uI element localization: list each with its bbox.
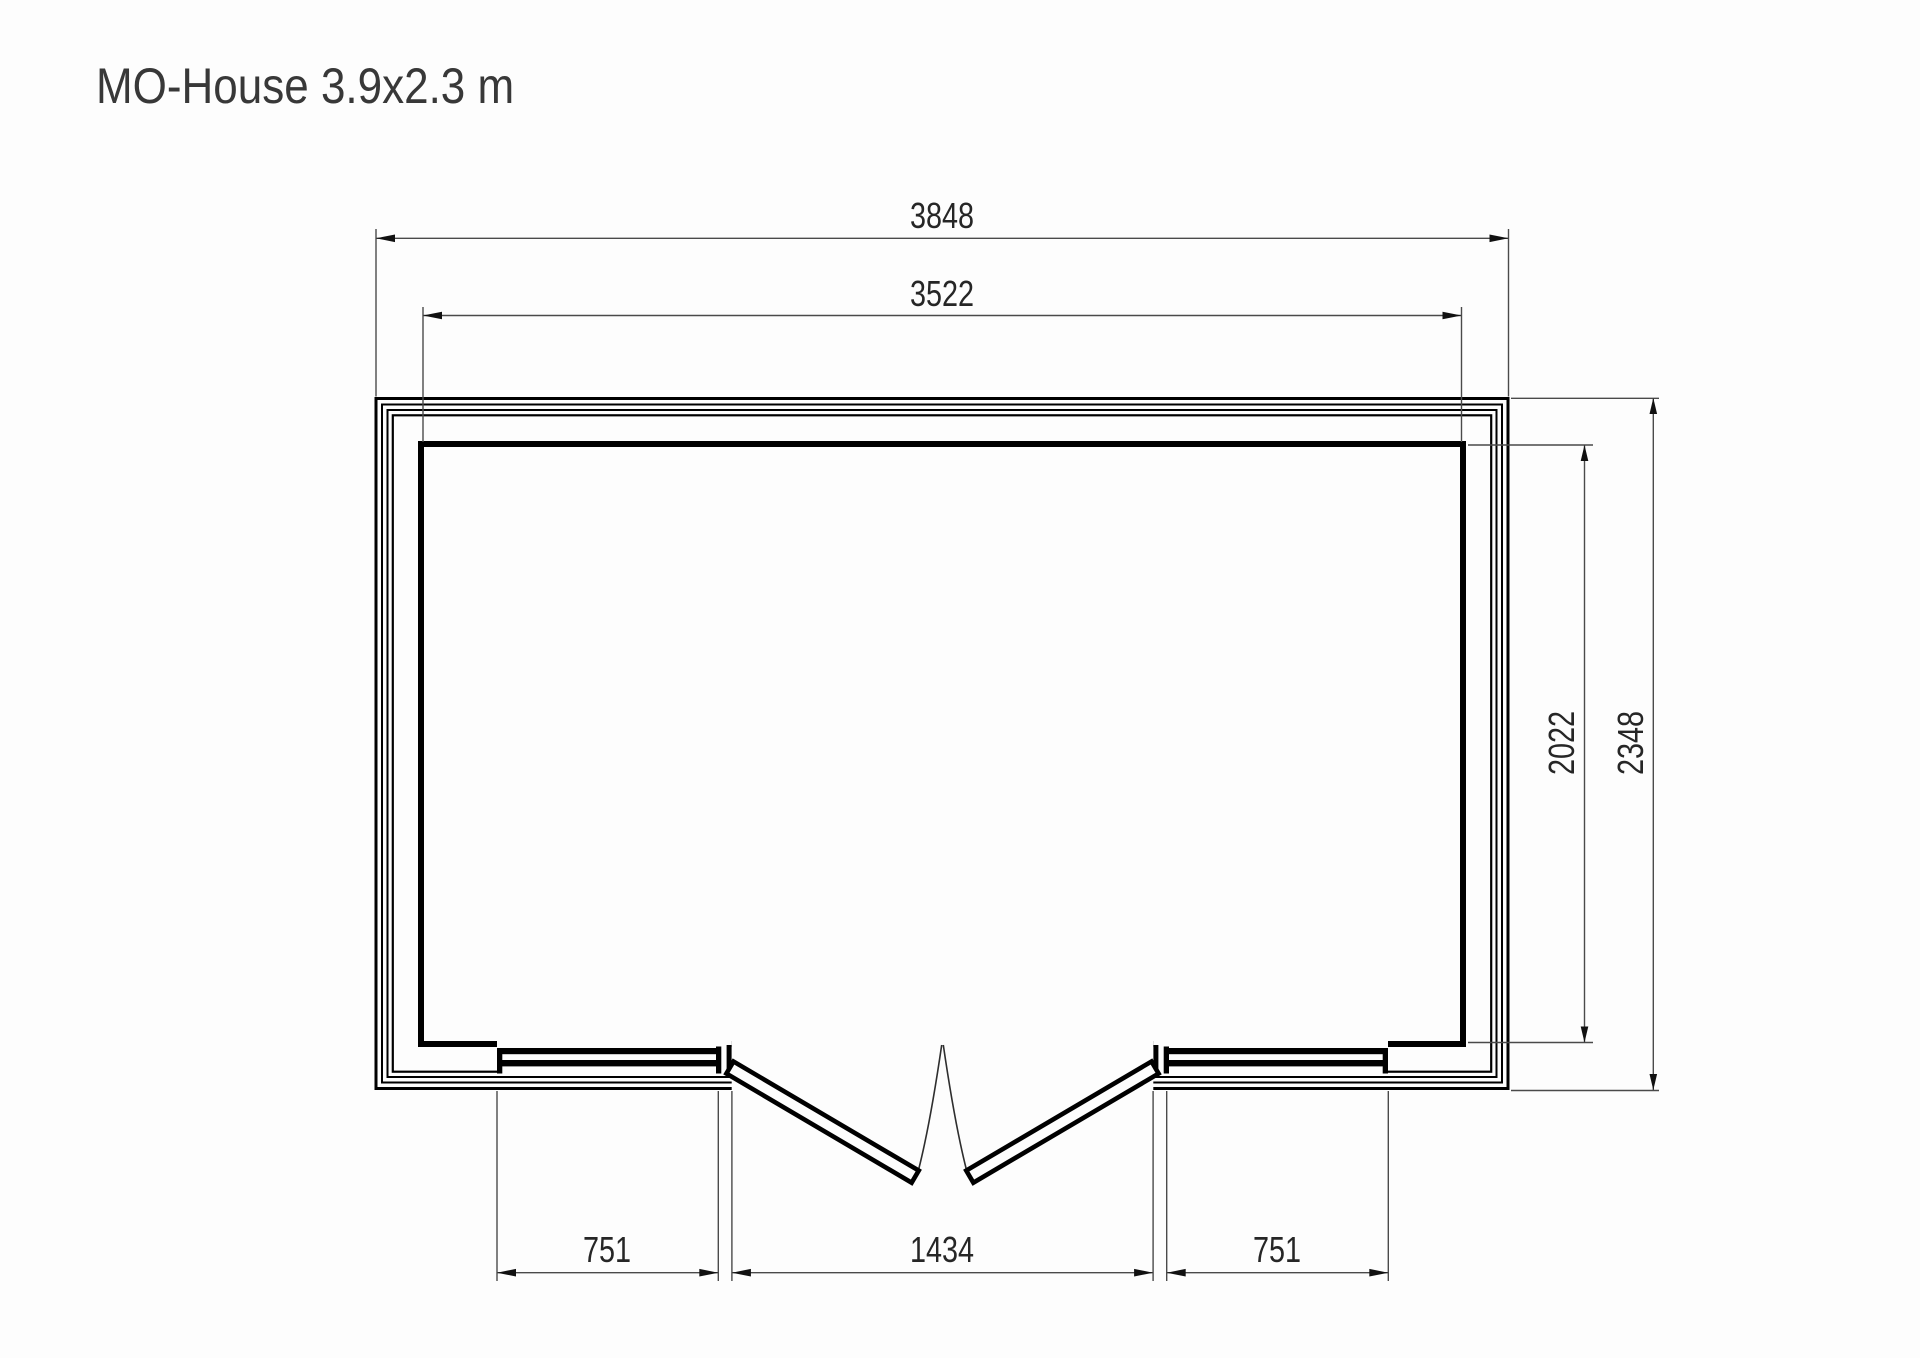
- dimension-lines: [376, 229, 1659, 1281]
- arrow-1434-left: [732, 1269, 751, 1277]
- wall-clad-line-1: [382, 405, 1502, 1083]
- dim-label-inner-depth: 2022: [1544, 711, 1580, 775]
- dim-label-inner-width: 3522: [910, 276, 974, 312]
- arrow-3522-left: [423, 312, 442, 320]
- arrow-751L-right: [699, 1269, 718, 1277]
- dim-label-left-window: 751: [583, 1232, 631, 1268]
- window-right-cap-left: [1164, 1047, 1169, 1074]
- floor-plan-page: MO-House 3.9x2.3 m 3848 3522 2022 2348 7…: [0, 0, 1920, 1358]
- wall-clad-line-2: [388, 410, 1497, 1077]
- arrow-3848-left: [376, 235, 395, 243]
- window-right-opening-mask: [1153, 1035, 1388, 1074]
- drawing-title: MO-House 3.9x2.3 m: [96, 61, 514, 111]
- arrow-2348-top: [1650, 398, 1658, 414]
- arrow-751R-right: [1369, 1269, 1388, 1277]
- arrow-2022-bottom: [1581, 1027, 1589, 1043]
- window-right-inner-sill: [1167, 1048, 1388, 1054]
- arrow-3848-right: [1490, 235, 1509, 243]
- window-left-glass-line: [497, 1060, 718, 1066]
- window-right-glass-line: [1167, 1060, 1388, 1066]
- window-left-cap-left: [497, 1048, 502, 1074]
- window-right-cap-right: [1383, 1048, 1388, 1074]
- dim-label-right-window: 751: [1253, 1232, 1301, 1268]
- dim-label-outer-depth: 2348: [1613, 711, 1649, 775]
- wall-outer-line: [376, 399, 1508, 1089]
- arrow-2022-top: [1581, 445, 1589, 461]
- arrow-3522-right: [1443, 312, 1462, 320]
- window-left-opening-mask: [497, 1035, 732, 1074]
- wall-inner-log: [421, 444, 1463, 1044]
- door-opening-mask: [732, 1028, 1154, 1098]
- dim-label-outer-width: 3848: [910, 198, 974, 234]
- wall-clad-line-3: [393, 415, 1491, 1071]
- dim-label-door-opening: 1434: [910, 1232, 974, 1268]
- window-left-cap-right: [716, 1047, 721, 1074]
- arrow-2348-bottom: [1650, 1074, 1658, 1090]
- window-left-inner-sill: [497, 1048, 718, 1054]
- arrow-751R-left: [1167, 1269, 1186, 1277]
- arrow-1434-right: [1134, 1269, 1153, 1277]
- arrow-751L-left: [497, 1269, 516, 1277]
- wall-outline: [376, 399, 1508, 1089]
